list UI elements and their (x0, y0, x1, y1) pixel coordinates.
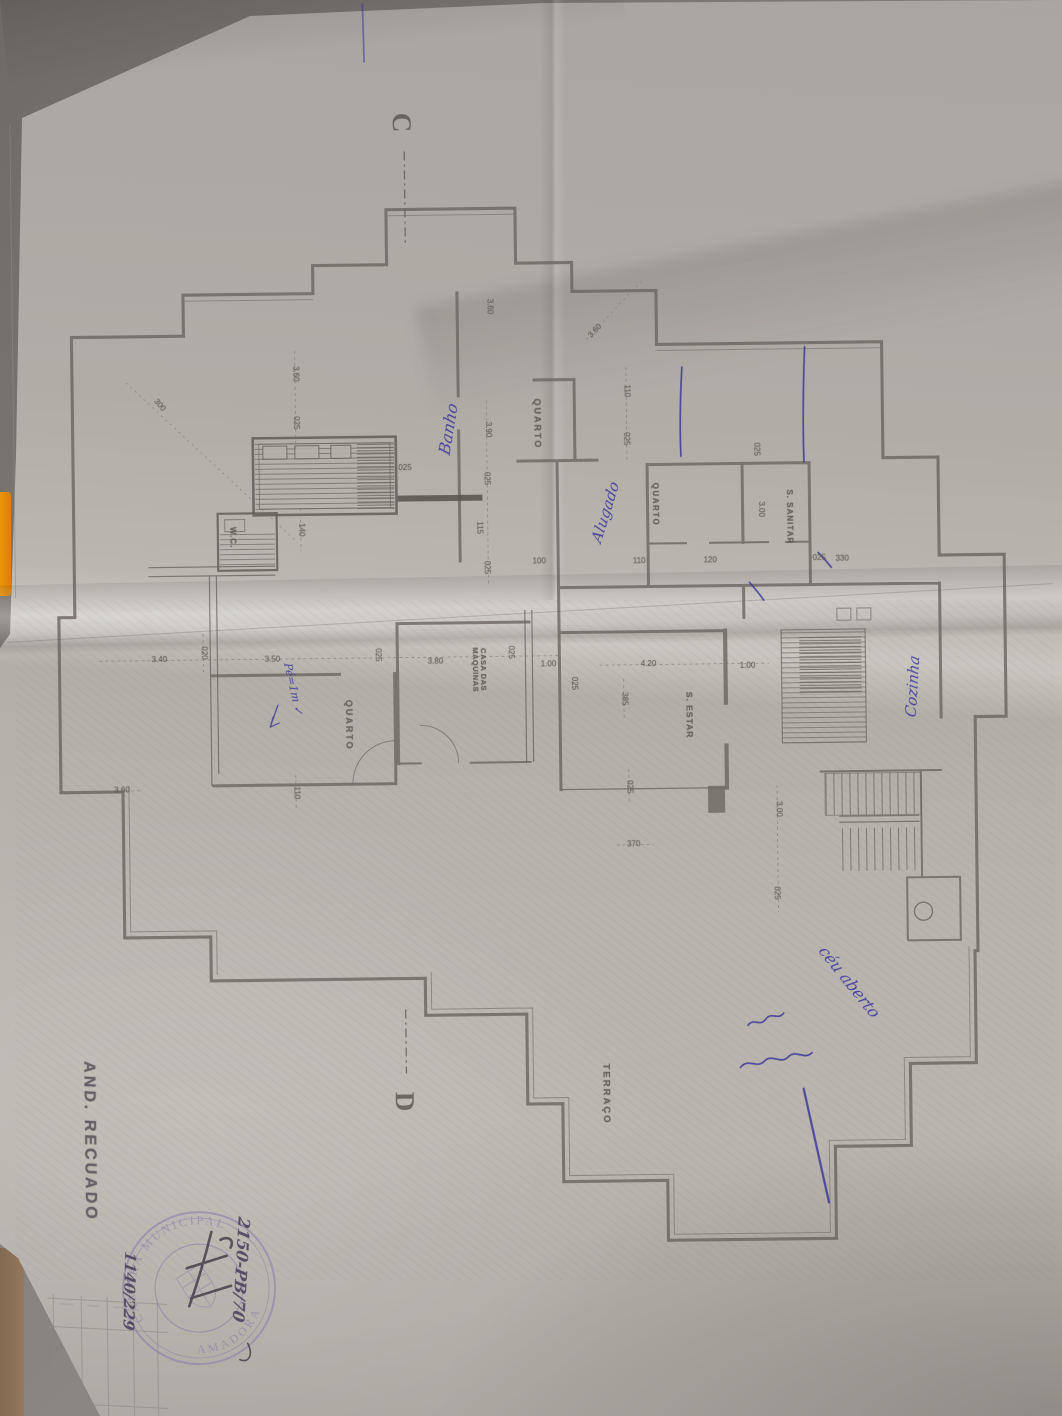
dimension-label: 025 (751, 443, 760, 456)
room-label: CASA DAS MAQUINAS (470, 639, 487, 701)
dimension-label: 330 (835, 555, 848, 564)
dimension-label: 3.00 (756, 501, 765, 517)
dimension-label: 025 (398, 464, 411, 473)
dimension-label: 025 (506, 646, 515, 659)
scanned-floorplan-photo: CÂMARA MUNICIPAL AMADORA QUARTOQUARTOQUA… (0, 0, 1062, 1416)
dimension-label: 3.80 (428, 658, 444, 667)
room-label: QUARTO (531, 398, 542, 449)
dimension-label: 140 (296, 523, 305, 536)
dimension-label: 3.60 (485, 299, 494, 315)
room-label: QUARTO (650, 483, 659, 527)
dimension-label: 025 (624, 780, 633, 793)
dimension-label: 1.00 (740, 662, 756, 671)
dimension-label: 025 (812, 554, 825, 563)
dimension-label: 025 (482, 472, 491, 485)
handwritten-note: Banho (436, 401, 461, 457)
dimension-label: 110 (633, 557, 646, 566)
dimension-label: 4.20 (641, 660, 657, 669)
room-label: S. ESTAR (684, 692, 694, 739)
handwritten-note: Cozinha (903, 654, 923, 719)
room-label: TERRAÇO (600, 1064, 611, 1125)
dimension-label: 3.90 (483, 422, 492, 438)
room-label: S. SANITAR (784, 489, 793, 544)
dimension-label: 3.60 (290, 366, 299, 382)
dimension-label: 3.50 (265, 656, 281, 665)
dimension-label: 3.40 (152, 656, 168, 665)
dimension-label: 025 (621, 432, 630, 445)
room-label: QUARTO (343, 700, 354, 751)
dimension-label: 3.60 (587, 322, 604, 339)
plan-layer: CÂMARA MUNICIPAL AMADORA QUARTOQUARTOQUA… (0, 0, 1062, 1416)
handwritten-process-number: 2150-PB/70 (229, 1216, 252, 1324)
handwritten-process-number: 1140/229 (120, 1250, 138, 1331)
dimension-label: 3.00 (774, 801, 783, 817)
handwritten-note: céu aberto (815, 944, 885, 1021)
dimension-label: 385 (619, 692, 628, 705)
dimension-label: 025 (291, 416, 300, 429)
room-label: W.C. (227, 527, 236, 548)
dimension-label: 110 (622, 384, 631, 397)
dimension-label: 100 (532, 557, 545, 566)
dimension-label: 115 (474, 521, 483, 534)
section-marker: D (389, 1092, 419, 1112)
handwritten-note: Alugado (589, 479, 623, 546)
dimension-label: 300 (152, 398, 167, 414)
handwritten-note: Pé=1m ✓ (281, 663, 305, 715)
dimension-label: 025 (482, 561, 491, 574)
dimension-label: 120 (703, 556, 716, 565)
plan-annotations: QUARTOQUARTOQUARTOW.C.S. SANITARS. ESTAR… (0, 0, 1062, 1416)
dimension-label: 110 (292, 786, 301, 799)
dimension-label: 020 (199, 646, 208, 659)
dimension-label: 025 (569, 677, 578, 690)
dimension-label: 025 (373, 648, 382, 661)
dimension-label: 025 (772, 886, 781, 899)
section-marker: C (386, 113, 416, 133)
floor-level-note: AND. RECUADO (79, 1061, 99, 1222)
dimension-label: 370 (627, 840, 640, 849)
dimension-label: 3.60 (114, 787, 130, 796)
dimension-label: 1.00 (541, 660, 557, 669)
